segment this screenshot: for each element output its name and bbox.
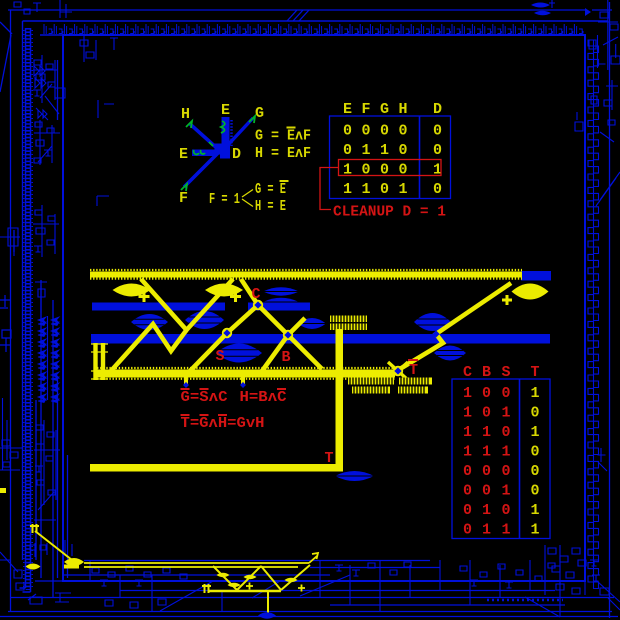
svg-text:1: 1 <box>482 502 491 519</box>
svg-text:0: 0 <box>433 123 442 140</box>
svg-text:0: 0 <box>501 463 510 480</box>
svg-text:0: 0 <box>530 483 539 500</box>
svg-text:1: 1 <box>501 483 510 500</box>
svg-text:H: H <box>181 106 190 123</box>
svg-text:E: E <box>221 102 230 119</box>
svg-text:H: H <box>398 101 407 118</box>
svg-text:1: 1 <box>463 444 472 461</box>
svg-text:1: 1 <box>482 522 491 539</box>
svg-text:1: 1 <box>530 522 539 539</box>
svg-text:H=BʌC: H=BʌC <box>240 389 287 406</box>
svg-text:S: S <box>501 364 510 381</box>
svg-text:G=SʌC: G=SʌC <box>181 389 228 406</box>
svg-text:0: 0 <box>501 502 510 519</box>
svg-text:H = EʌF: H = EʌF <box>255 145 311 162</box>
svg-text:1: 1 <box>530 424 539 441</box>
svg-text:1: 1 <box>530 385 539 402</box>
svg-text:G: G <box>380 101 389 118</box>
svg-text:F = 1: F = 1 <box>209 191 240 208</box>
svg-text:B: B <box>482 364 491 381</box>
svg-text:1: 1 <box>380 142 389 159</box>
svg-text:T=GʌH=GvH: T=GʌH=GvH <box>181 415 265 432</box>
svg-text:T: T <box>325 450 334 467</box>
svg-text:C: C <box>463 364 472 381</box>
svg-text:0: 0 <box>361 123 370 140</box>
svg-text:0: 0 <box>482 483 491 500</box>
svg-text:1: 1 <box>463 385 472 402</box>
svg-text:0: 0 <box>433 142 442 159</box>
svg-text:0: 0 <box>530 444 539 461</box>
svg-text:E: E <box>343 101 352 118</box>
svg-text:1: 1 <box>361 181 370 198</box>
svg-text:B: B <box>282 349 291 366</box>
svg-text:G = E: G = E <box>255 181 286 198</box>
svg-text:0: 0 <box>398 142 407 159</box>
svg-text:0: 0 <box>482 385 491 402</box>
svg-text:D: D <box>232 146 241 163</box>
svg-text:H = E: H = E <box>255 198 286 215</box>
svg-text:0: 0 <box>398 123 407 140</box>
svg-text:1: 1 <box>463 424 472 441</box>
svg-text:0: 0 <box>343 123 352 140</box>
svg-text:F: F <box>179 190 188 207</box>
svg-text:0: 0 <box>380 123 389 140</box>
svg-text:1: 1 <box>530 502 539 519</box>
svg-text:CLEANUP D = 1: CLEANUP D = 1 <box>333 204 446 221</box>
svg-text:E: E <box>179 146 188 163</box>
svg-text:F: F <box>361 101 370 118</box>
svg-text:0: 0 <box>501 385 510 402</box>
svg-text:T: T <box>530 364 539 381</box>
svg-text:1: 1 <box>361 142 370 159</box>
svg-text:1: 1 <box>501 405 510 422</box>
svg-text:G = EʌF: G = EʌF <box>255 128 311 145</box>
svg-text:1: 1 <box>501 522 510 539</box>
svg-text:0: 0 <box>482 405 491 422</box>
svg-text:1: 1 <box>501 444 510 461</box>
svg-text:T: T <box>409 362 418 379</box>
svg-text:1: 1 <box>482 424 491 441</box>
svg-text:0: 0 <box>482 463 491 480</box>
svg-text:0: 0 <box>501 424 510 441</box>
svg-text:0: 0 <box>380 181 389 198</box>
svg-text:1: 1 <box>482 444 491 461</box>
svg-text:0: 0 <box>463 463 472 480</box>
svg-text:1: 1 <box>398 181 407 198</box>
svg-text:0: 0 <box>463 502 472 519</box>
svg-text:1: 1 <box>343 181 352 198</box>
svg-text:0: 0 <box>463 483 472 500</box>
svg-text:G: G <box>255 105 264 122</box>
svg-text:0: 0 <box>463 522 472 539</box>
svg-text:0: 0 <box>343 142 352 159</box>
svg-text:0: 0 <box>530 463 539 480</box>
svg-text:D: D <box>433 101 442 118</box>
svg-text:1: 1 <box>463 405 472 422</box>
svg-text:0: 0 <box>530 405 539 422</box>
svg-text:0: 0 <box>433 181 442 198</box>
svg-text:S: S <box>216 348 225 365</box>
svg-text:C: C <box>252 286 261 303</box>
